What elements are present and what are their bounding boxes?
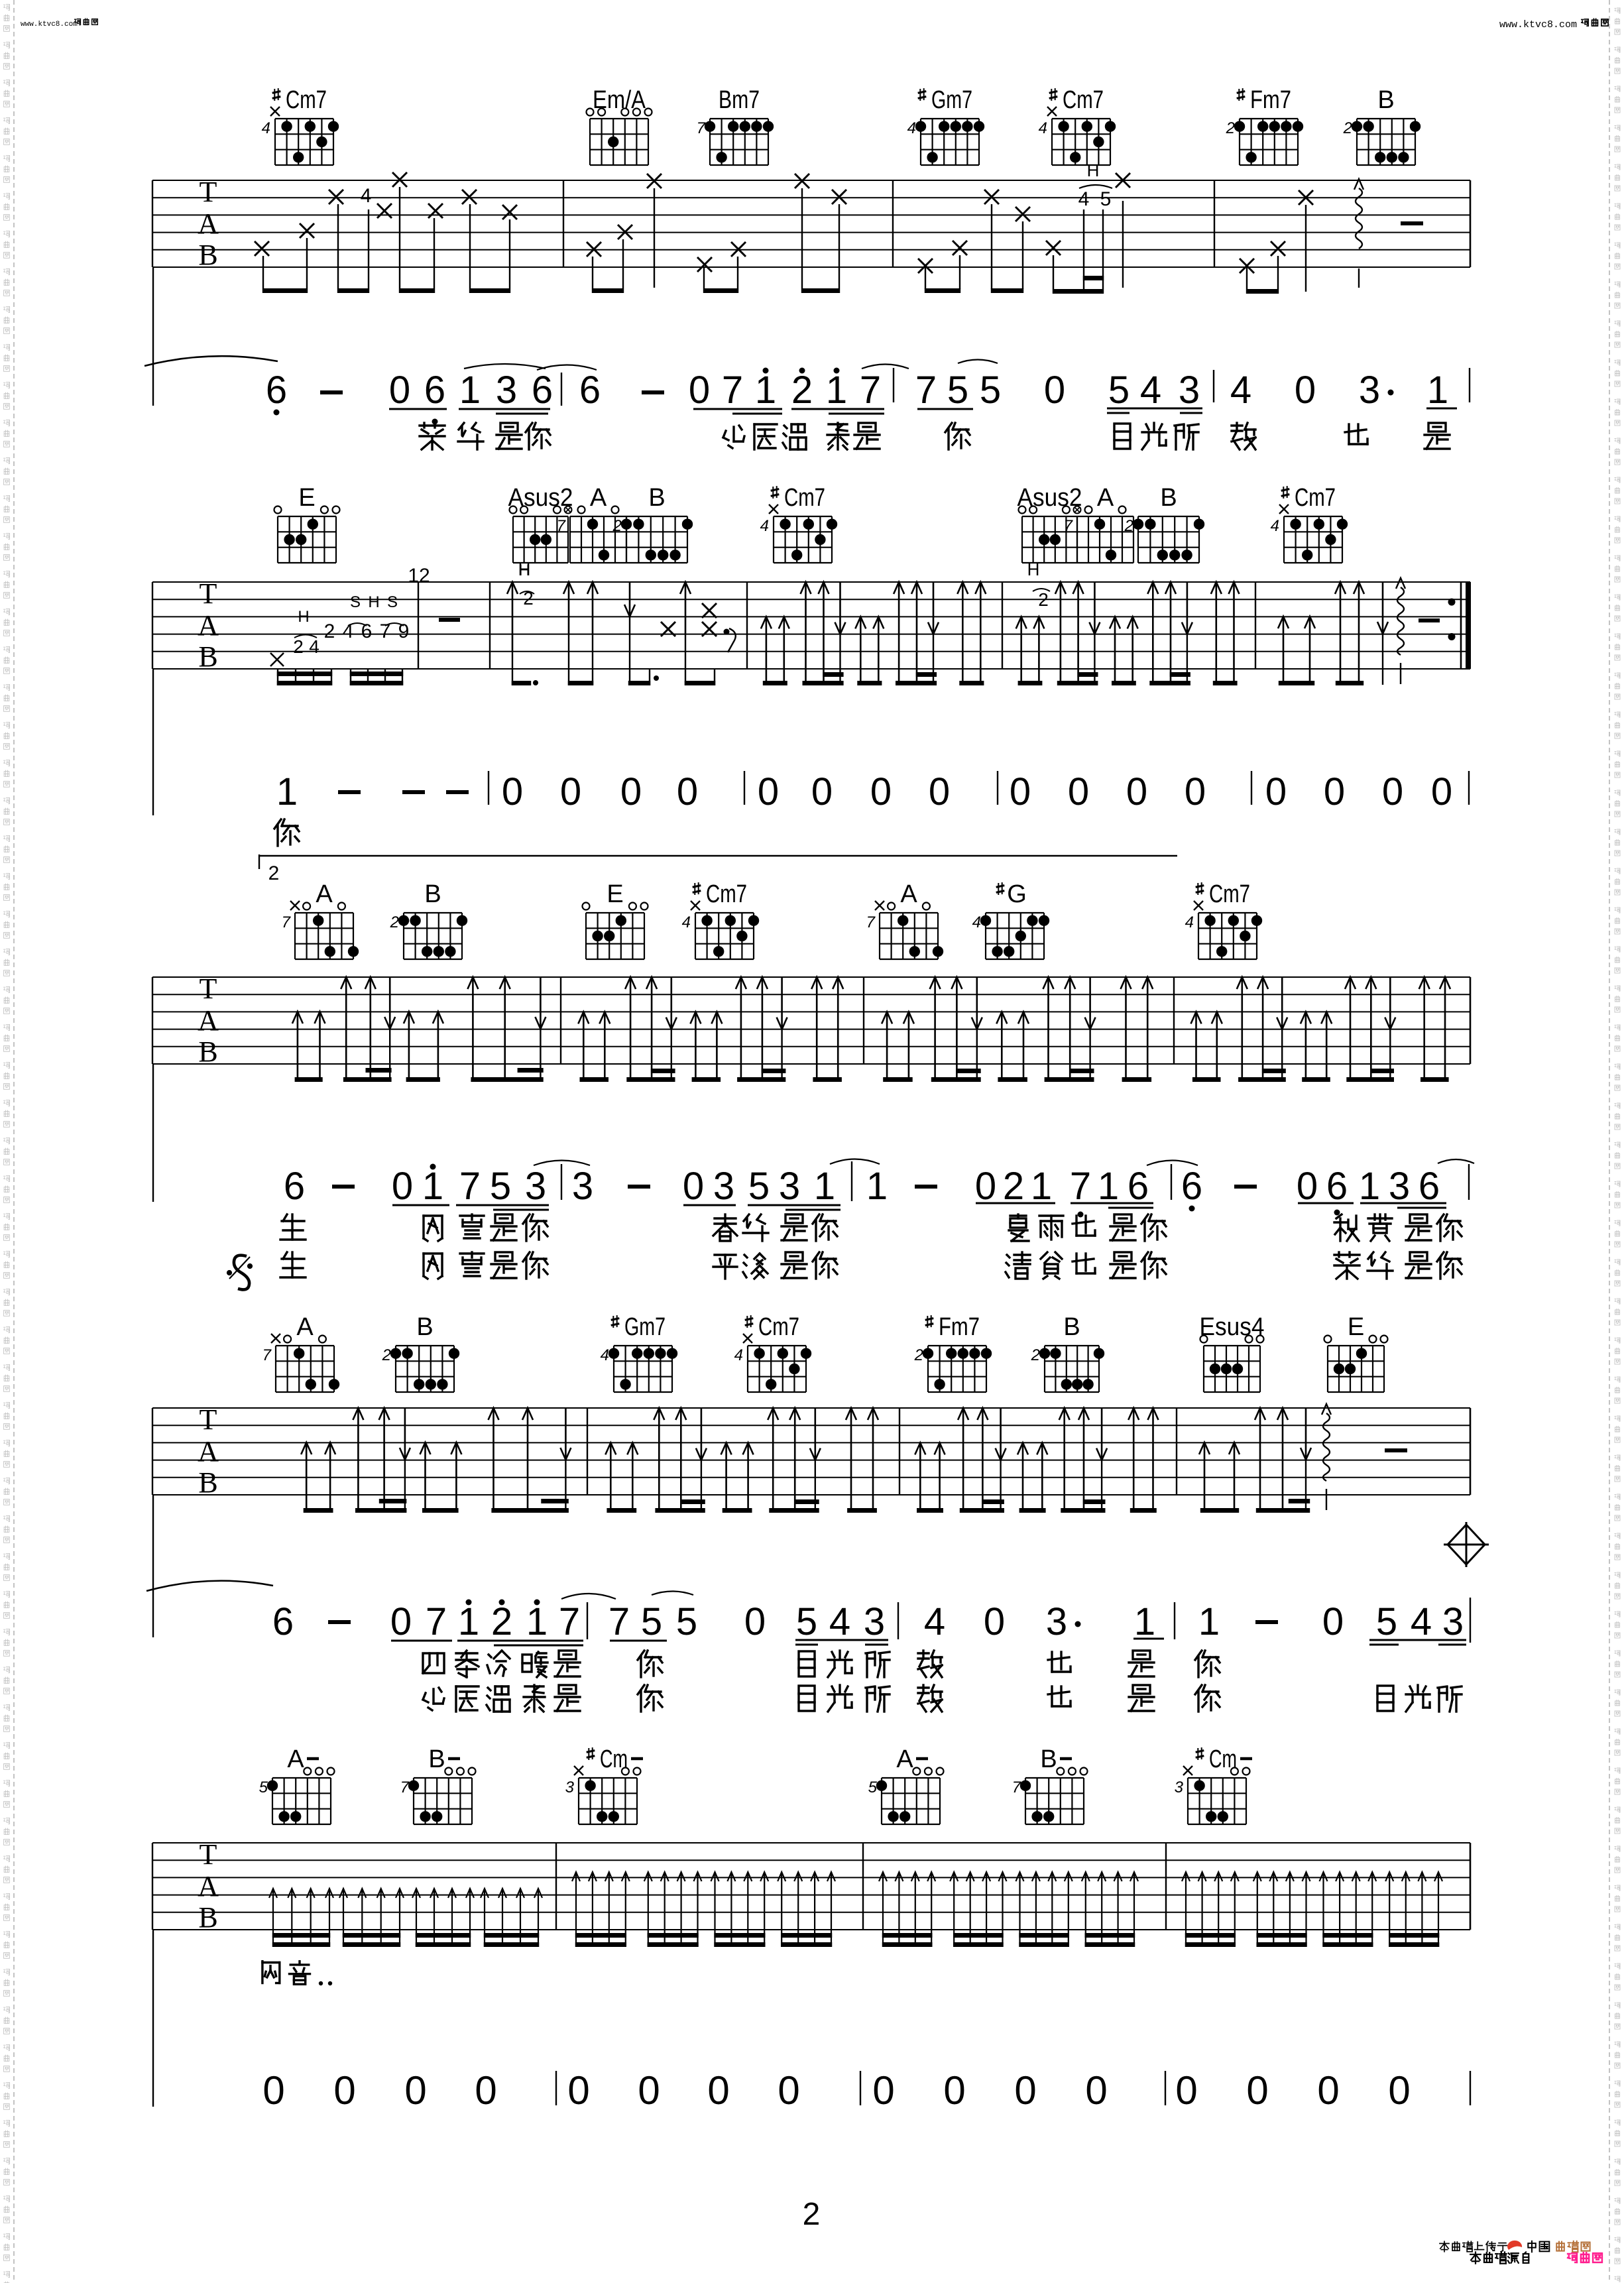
- svg-text:G: G: [1007, 880, 1027, 908]
- svg-text:0: 0: [872, 2068, 894, 2113]
- svg-text:0: 0: [1431, 770, 1452, 813]
- svg-text:0: 0: [1126, 770, 1147, 813]
- svg-text:4: 4: [262, 119, 270, 137]
- svg-text:4: 4: [682, 913, 691, 931]
- svg-text:A: A: [590, 484, 607, 512]
- svg-text:5: 5: [259, 1779, 268, 1796]
- svg-text:7: 7: [609, 1600, 630, 1643]
- svg-text:0: 0: [744, 1600, 766, 1643]
- svg-text:6: 6: [1181, 1165, 1202, 1208]
- svg-text:Bm7: Bm7: [719, 86, 760, 114]
- svg-text:4: 4: [309, 636, 319, 657]
- svg-text:1: 1: [755, 369, 776, 412]
- svg-text:0: 0: [984, 1600, 1005, 1643]
- svg-text:6: 6: [1326, 1165, 1348, 1208]
- svg-text:5: 5: [947, 369, 968, 412]
- svg-text:A: A: [316, 880, 333, 908]
- svg-text:H: H: [518, 561, 530, 579]
- svg-text:B: B: [198, 640, 217, 673]
- svg-text:4: 4: [1078, 188, 1090, 210]
- svg-text:1: 1: [1134, 1600, 1155, 1643]
- svg-text:A: A: [296, 1313, 314, 1341]
- svg-text:H: H: [1027, 559, 1040, 579]
- svg-text:1: 1: [1359, 1165, 1380, 1208]
- svg-text:4: 4: [734, 1346, 743, 1364]
- svg-text:B: B: [198, 239, 217, 271]
- svg-text:0: 0: [1068, 770, 1089, 813]
- svg-text:6: 6: [532, 369, 553, 412]
- svg-text:A: A: [1097, 484, 1114, 512]
- svg-text:0: 0: [677, 770, 698, 813]
- svg-text:1: 1: [1031, 1165, 1052, 1208]
- svg-text:0: 0: [707, 2068, 729, 2113]
- svg-text:7: 7: [722, 369, 743, 412]
- svg-text:5: 5: [641, 1600, 662, 1643]
- svg-text:3: 3: [565, 1779, 575, 1796]
- svg-text:7: 7: [459, 1165, 481, 1208]
- svg-text:0: 0: [389, 369, 410, 412]
- svg-text:3: 3: [1179, 369, 1200, 412]
- svg-text:1: 1: [826, 369, 847, 412]
- svg-text:2: 2: [803, 2197, 821, 2232]
- svg-text:Asus2: Asus2: [1017, 484, 1082, 512]
- svg-text:0: 0: [1295, 369, 1316, 412]
- svg-text:A: A: [198, 207, 219, 240]
- svg-text:B: B: [1063, 1313, 1080, 1341]
- svg-text:5: 5: [1100, 188, 1112, 210]
- svg-text:0: 0: [778, 2068, 799, 2113]
- svg-text:4: 4: [601, 1346, 609, 1364]
- svg-text:2: 2: [390, 913, 399, 931]
- svg-text:Gm7: Gm7: [624, 1313, 666, 1341]
- svg-text:4: 4: [907, 119, 916, 137]
- svg-text:0: 0: [689, 369, 710, 412]
- svg-text:Em/A: Em/A: [593, 86, 646, 114]
- svg-text:7: 7: [860, 369, 881, 412]
- svg-text:3: 3: [864, 1600, 885, 1643]
- svg-text:2: 2: [1124, 517, 1133, 535]
- svg-text:1: 1: [458, 1600, 479, 1643]
- svg-text:2: 2: [612, 517, 622, 535]
- svg-text:0: 0: [620, 770, 642, 813]
- svg-text:5: 5: [796, 1600, 817, 1643]
- svg-text:Fm7: Fm7: [939, 1313, 980, 1341]
- svg-text:6: 6: [1128, 1165, 1149, 1208]
- svg-text:0: 0: [1388, 2068, 1410, 2113]
- svg-text:0: 0: [1185, 770, 1206, 813]
- svg-text:0: 0: [333, 2068, 355, 2113]
- svg-text:B: B: [424, 880, 441, 908]
- svg-text:6: 6: [266, 369, 287, 412]
- svg-text:5: 5: [490, 1165, 511, 1208]
- svg-text:3: 3: [713, 1165, 734, 1208]
- svg-text:5: 5: [1376, 1600, 1397, 1643]
- svg-text:0: 0: [567, 2068, 589, 2113]
- svg-text:Fm7: Fm7: [1250, 86, 1291, 114]
- svg-text:6: 6: [579, 369, 601, 412]
- svg-text:B: B: [648, 484, 665, 512]
- svg-text:5: 5: [676, 1600, 697, 1643]
- svg-text:1: 1: [276, 770, 298, 813]
- svg-text:3: 3: [1046, 1600, 1067, 1643]
- svg-text:0: 0: [404, 2068, 426, 2113]
- svg-text:0: 0: [1085, 2068, 1107, 2113]
- svg-text:S: S: [387, 593, 398, 611]
- svg-text:3: 3: [525, 1165, 546, 1208]
- svg-text:Asus2: Asus2: [508, 484, 573, 512]
- svg-text:0: 0: [975, 1165, 996, 1208]
- svg-text:T: T: [200, 176, 217, 208]
- svg-text:6: 6: [272, 1600, 294, 1643]
- svg-text:7: 7: [866, 913, 876, 931]
- svg-text:Cm7: Cm7: [286, 86, 327, 114]
- svg-text:2: 2: [1343, 119, 1352, 137]
- svg-text:A: A: [896, 1745, 913, 1773]
- svg-text:Gm7: Gm7: [931, 86, 972, 114]
- svg-text:1: 1: [1098, 1165, 1119, 1208]
- svg-text:2: 2: [791, 369, 813, 412]
- svg-text:A: A: [198, 1004, 219, 1037]
- svg-text:Cm7: Cm7: [706, 880, 747, 908]
- svg-text:Cm7: Cm7: [1063, 86, 1104, 114]
- svg-text:H: H: [298, 608, 309, 626]
- svg-text:5: 5: [1108, 369, 1130, 412]
- svg-text:E: E: [1348, 1313, 1364, 1341]
- svg-text:0: 0: [1322, 1600, 1344, 1643]
- svg-text:0: 0: [870, 770, 892, 813]
- svg-text:1: 1: [866, 1165, 888, 1208]
- svg-text:Esus4: Esus4: [1200, 1313, 1265, 1341]
- svg-text:0: 0: [811, 770, 833, 813]
- svg-text:0: 0: [758, 770, 779, 813]
- svg-text:7: 7: [915, 369, 937, 412]
- svg-text:4: 4: [972, 913, 981, 931]
- svg-text:3: 3: [1359, 369, 1380, 412]
- svg-text:B: B: [198, 1466, 217, 1499]
- svg-text:T: T: [200, 972, 217, 1005]
- svg-text:4: 4: [1185, 913, 1194, 931]
- svg-text:0: 0: [390, 1600, 412, 1643]
- svg-text:6: 6: [424, 369, 445, 412]
- svg-text:4: 4: [829, 1600, 850, 1643]
- svg-text:B: B: [1377, 86, 1394, 114]
- svg-text:0: 0: [560, 770, 581, 813]
- svg-text:2: 2: [1038, 589, 1049, 610]
- svg-text:A: A: [900, 880, 917, 908]
- svg-text:1: 1: [459, 369, 481, 412]
- svg-text:A: A: [198, 609, 219, 642]
- svg-text:0: 0: [929, 770, 950, 813]
- svg-text:5: 5: [868, 1779, 878, 1796]
- svg-text:T: T: [200, 1403, 217, 1436]
- svg-text:B: B: [428, 1745, 445, 1773]
- svg-text:4: 4: [1271, 517, 1279, 535]
- svg-text:0: 0: [1246, 2068, 1268, 2113]
- svg-text:2: 2: [914, 1346, 923, 1364]
- svg-text:4: 4: [760, 517, 769, 535]
- svg-text:3: 3: [496, 369, 517, 412]
- svg-text:2: 2: [382, 1346, 391, 1364]
- svg-text:H: H: [1087, 160, 1100, 180]
- svg-text:Cm7: Cm7: [758, 1313, 799, 1341]
- svg-text:0: 0: [1010, 770, 1031, 813]
- svg-text:4: 4: [1039, 119, 1047, 137]
- svg-text:4: 4: [924, 1600, 945, 1643]
- svg-text:Cm: Cm: [1209, 1745, 1237, 1773]
- svg-text:A: A: [198, 1870, 219, 1903]
- svg-text:3: 3: [1389, 1165, 1410, 1208]
- svg-text:A: A: [287, 1745, 304, 1773]
- svg-text:A: A: [198, 1435, 219, 1468]
- svg-text:1: 1: [814, 1165, 835, 1208]
- svg-text:1: 1: [526, 1600, 548, 1643]
- svg-text:7: 7: [1070, 1165, 1091, 1208]
- svg-text:3: 3: [1175, 1779, 1184, 1796]
- svg-text:B: B: [1160, 484, 1177, 512]
- svg-text:E: E: [607, 880, 623, 908]
- svg-text:T: T: [200, 1838, 217, 1871]
- svg-text:0: 0: [1324, 770, 1345, 813]
- svg-text:7: 7: [262, 1346, 272, 1364]
- svg-text:B: B: [416, 1313, 433, 1341]
- svg-text:E: E: [298, 484, 315, 512]
- svg-text:0: 0: [475, 2068, 496, 2113]
- svg-text:6: 6: [1419, 1165, 1440, 1208]
- svg-text:S: S: [350, 593, 361, 611]
- svg-text:B: B: [198, 1901, 217, 1934]
- svg-text:4: 4: [361, 185, 372, 207]
- svg-text:3: 3: [779, 1165, 800, 1208]
- svg-text:Cm: Cm: [600, 1745, 628, 1773]
- svg-text:H: H: [368, 593, 379, 611]
- svg-text:1: 1: [1427, 369, 1448, 412]
- svg-text:4: 4: [1140, 369, 1161, 412]
- svg-text:1: 1: [1198, 1600, 1220, 1643]
- svg-text:0: 0: [392, 1165, 413, 1208]
- svg-text:1: 1: [422, 1165, 443, 1208]
- svg-text:2: 2: [1031, 1346, 1040, 1364]
- svg-text:7: 7: [557, 517, 567, 535]
- svg-text:2: 2: [1226, 119, 1235, 137]
- svg-text:www.ktvc8.com: www.ktvc8.com: [21, 21, 78, 29]
- svg-text:7: 7: [426, 1600, 447, 1643]
- svg-text:5: 5: [748, 1165, 770, 1208]
- svg-text:7: 7: [1064, 517, 1074, 535]
- svg-text:7: 7: [559, 1600, 580, 1643]
- svg-text:2: 2: [1003, 1165, 1024, 1208]
- svg-text:0: 0: [638, 2068, 660, 2113]
- svg-text:0: 0: [683, 1165, 704, 1208]
- svg-text:0: 0: [943, 2068, 965, 2113]
- svg-text:4: 4: [1411, 1600, 1432, 1643]
- svg-text:0: 0: [1044, 369, 1065, 412]
- svg-text:2: 2: [491, 1600, 512, 1643]
- svg-text:3: 3: [1442, 1600, 1464, 1643]
- svg-text:12: 12: [408, 565, 430, 587]
- svg-text:Cm7: Cm7: [1209, 880, 1250, 908]
- svg-text:B: B: [1040, 1745, 1057, 1773]
- svg-text:0: 0: [502, 770, 523, 813]
- svg-text:2: 2: [324, 620, 335, 642]
- svg-text:2: 2: [268, 862, 280, 884]
- svg-text:2: 2: [523, 588, 534, 609]
- svg-text:4: 4: [1230, 369, 1251, 412]
- svg-text:3: 3: [572, 1165, 593, 1208]
- svg-text:T: T: [200, 577, 217, 610]
- svg-text:www.ktvc8.com: www.ktvc8.com: [1499, 19, 1577, 30]
- svg-text:0: 0: [262, 2068, 284, 2113]
- svg-text:Cm7: Cm7: [1295, 484, 1336, 512]
- svg-text:0: 0: [1014, 2068, 1036, 2113]
- svg-text:0: 0: [1297, 1165, 1318, 1208]
- svg-text:7: 7: [282, 913, 292, 931]
- svg-text:2: 2: [293, 636, 304, 657]
- svg-text:Cm7: Cm7: [784, 484, 825, 512]
- svg-text:5: 5: [980, 369, 1001, 412]
- svg-text:6: 6: [284, 1165, 305, 1208]
- svg-text:0: 0: [1265, 770, 1287, 813]
- svg-text:0: 0: [1175, 2068, 1197, 2113]
- svg-text:0: 0: [1317, 2068, 1339, 2113]
- svg-text:0: 0: [1382, 770, 1403, 813]
- svg-text:B: B: [198, 1035, 217, 1068]
